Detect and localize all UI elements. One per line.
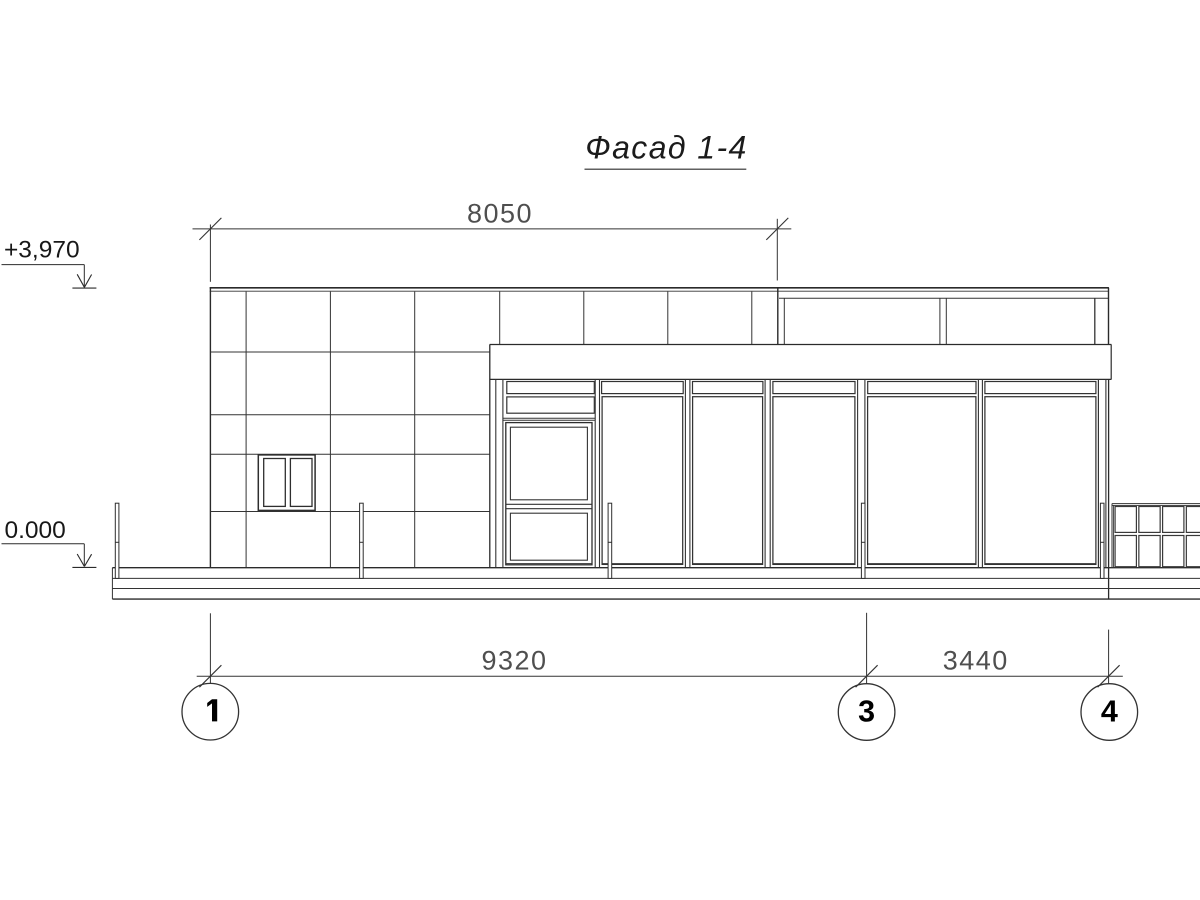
svg-text:8050: 8050 [467,198,533,228]
svg-text:3: 3 [858,695,875,729]
svg-text:0.000: 0.000 [5,517,66,544]
svg-text:4: 4 [1101,695,1118,729]
svg-text:+3,970: +3,970 [4,237,80,264]
svg-text:Фасад 1-4: Фасад 1-4 [585,129,747,165]
svg-text:3440: 3440 [943,646,1009,676]
svg-text:9320: 9320 [481,646,547,676]
